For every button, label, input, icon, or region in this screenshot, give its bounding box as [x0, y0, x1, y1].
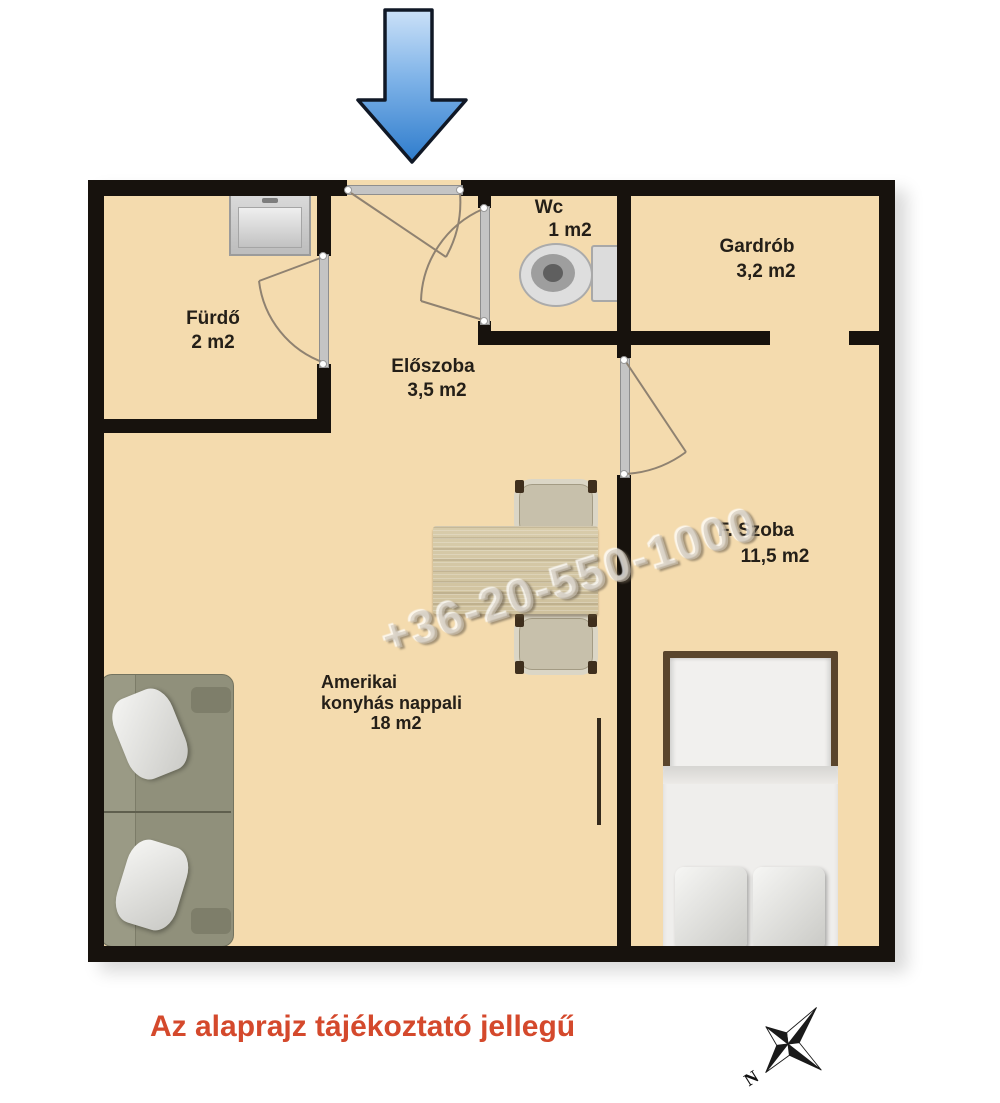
wall-segment — [317, 364, 331, 433]
wc-door — [480, 206, 490, 325]
floor-plan-canvas: Fürdő 2 m2 Wc 1 m2 Gardrób 3,2 m2 Előszo… — [0, 0, 1000, 1103]
wall-segment — [88, 419, 331, 433]
sofa-bolster — [191, 687, 231, 713]
sink-basin — [238, 207, 302, 248]
faucet-icon — [262, 198, 278, 203]
bedroom-door — [620, 358, 630, 478]
entrance-door — [347, 185, 463, 195]
toilet — [519, 243, 593, 307]
wall-segment — [88, 180, 104, 962]
sofa — [100, 674, 234, 947]
wall-segment — [849, 331, 895, 345]
bed-pillow-left — [675, 867, 747, 951]
sink — [229, 194, 311, 256]
chair-leg — [588, 480, 597, 493]
room-area-furdo: 2 m2 — [128, 332, 298, 354]
disclaimer-text: Az alaprajz tájékoztató jellegű — [150, 1010, 575, 1044]
wall-segment — [879, 180, 895, 962]
entrance-arrow-icon — [340, 5, 485, 170]
chair-leg — [588, 661, 597, 674]
room-area-eloszoba: 3,5 m2 — [352, 380, 522, 402]
room-label-furdo: Fürdő — [128, 308, 298, 330]
wall-segment — [88, 946, 895, 962]
room-area-nappali: 18 m2 — [321, 713, 471, 734]
bed-pillow-right — [753, 867, 825, 951]
sofa-bolster — [191, 908, 231, 934]
wall-segment — [88, 180, 347, 196]
chair-leg — [515, 480, 524, 493]
sofa-cushion-divider — [103, 811, 231, 813]
room-label-gardrob: Gardrób — [672, 236, 842, 258]
toilet-bowl-center — [543, 264, 563, 282]
radiator-line — [597, 718, 601, 825]
compass-icon — [715, 992, 865, 1097]
bed — [663, 651, 838, 962]
room-label-wc: Wc — [494, 197, 604, 219]
wall-segment — [478, 180, 491, 208]
room-area-gardrob: 3,2 m2 — [681, 261, 851, 283]
bed-duvet-fold — [663, 766, 838, 784]
wall-segment — [461, 180, 895, 196]
room-label-eloszoba: Előszoba — [348, 356, 518, 378]
bathroom-door — [319, 254, 329, 368]
room-area-wc: 1 m2 — [515, 220, 625, 242]
wall-segment — [617, 180, 631, 358]
wall-segment — [317, 180, 331, 256]
